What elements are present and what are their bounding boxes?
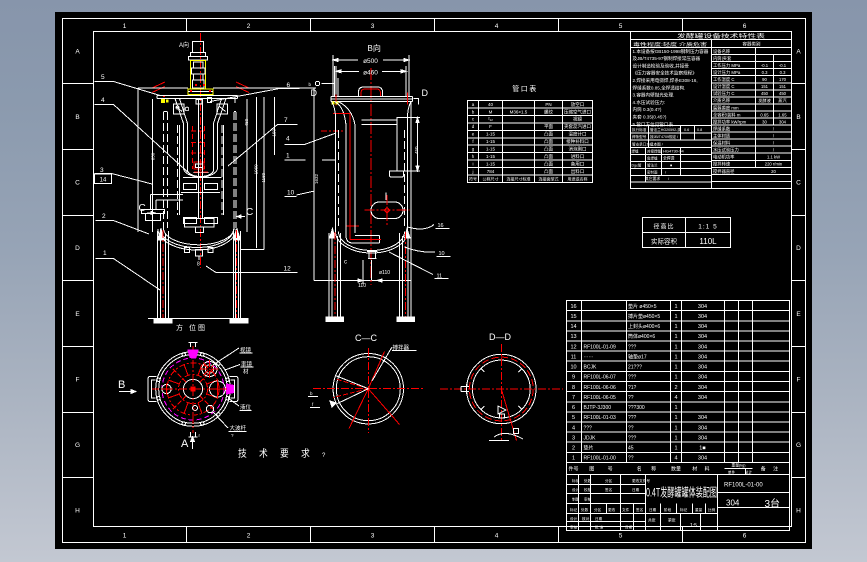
svg-text:45: 45	[628, 446, 634, 452]
svg-text:3: 3	[100, 167, 104, 174]
svg-text:数量: 数量	[671, 466, 681, 473]
svg-text:6: 6	[743, 23, 747, 30]
svg-text:C: C	[796, 180, 801, 187]
svg-text:核对: 核对	[582, 516, 590, 521]
svg-text:1: 1	[123, 23, 127, 30]
svg-text:??: ??	[628, 456, 634, 462]
svg-text:B: B	[118, 379, 125, 391]
svg-text:1060: 1060	[253, 164, 258, 175]
svg-text:7: 7	[572, 395, 575, 401]
svg-text:5: 5	[619, 533, 623, 540]
svg-text:处数: 处数	[584, 478, 592, 483]
svg-text:220 r/min: 220 r/min	[765, 162, 783, 167]
svg-text:450: 450	[761, 91, 769, 96]
svg-text:1■: 1■	[699, 446, 705, 452]
svg-text:ø460: ø460	[363, 69, 378, 76]
svg-text:设计制造检验及验收,并接受: 设计制造检验及验收,并接受	[633, 62, 690, 69]
svg-text:2: 2	[674, 385, 677, 391]
svg-text:21???: 21???	[628, 365, 642, 371]
svg-text:M36×1.5: M36×1.5	[510, 109, 528, 114]
svg-text:j: j	[472, 169, 474, 174]
svg-text:304: 304	[698, 304, 707, 310]
svg-text:1-15: 1-15	[486, 139, 496, 144]
svg-text:1632: 1632	[314, 173, 319, 184]
svg-text:《压力容器安全技术监察规程》: 《压力容器安全技术监察规程》	[633, 70, 697, 77]
svg-text:M: M	[489, 109, 493, 114]
svg-text:角焊缝: 角焊缝	[647, 156, 658, 161]
svg-text:1: 1	[674, 314, 677, 320]
svg-text:D—D: D—D	[489, 332, 511, 342]
svg-text:液位: 液位	[240, 403, 252, 411]
svg-text:0.3: 0.3	[762, 70, 768, 75]
svg-text:全容积/装料 m: 全容积/装料 m	[713, 111, 741, 118]
svg-text:标记: 标记	[680, 507, 688, 512]
svg-text:分区: 分区	[594, 507, 602, 512]
svg-text:温度计口: 温度计口	[569, 131, 587, 138]
svg-text:搅拌器直径: 搅拌器直径	[713, 168, 735, 175]
svg-text:备用口: 备用口	[571, 160, 585, 167]
svg-text:管口表: 管口表	[512, 84, 538, 93]
svg-text:阶段: 阶段	[664, 507, 672, 512]
svg-text:110: 110	[358, 283, 366, 289]
svg-text:1: 1	[674, 365, 677, 371]
svg-text:工作温度 C: 工作温度 C	[713, 76, 734, 83]
svg-text:消泡剩口: 消泡剩口	[569, 146, 587, 153]
svg-text:内筒 0.3(0.4?): 内筒 0.3(0.4?)	[633, 106, 662, 113]
svg-text:螺纹: 螺纹	[544, 108, 553, 115]
svg-text:A: A	[75, 49, 80, 56]
svg-text:6: 6	[743, 533, 747, 540]
svg-text:更改文件号: 更改文件号	[632, 478, 650, 483]
svg-text:第张: 第张	[668, 518, 676, 523]
svg-text:3台: 3台	[765, 497, 781, 510]
svg-text:10: 10	[570, 365, 576, 371]
svg-text:G: G	[796, 442, 801, 449]
svg-text:径高比: 径高比	[653, 223, 674, 231]
svg-text:日期: 日期	[632, 487, 640, 492]
svg-text:连接面型式: 连接面型式	[539, 175, 559, 181]
svg-text:管法兰: 管法兰	[647, 163, 658, 168]
svg-text:1: 1	[674, 304, 677, 310]
svg-text:夹套 0.35(0.45?): 夹套 0.35(0.45?)	[633, 114, 667, 121]
svg-text:材: 材	[243, 368, 249, 376]
svg-text:1: 1	[674, 425, 677, 431]
svg-text:发酵罐设备技术特性表: 发酵罐设备技术特性表	[677, 32, 766, 40]
svg-text:RF100L-01-09: RF100L-01-09	[584, 344, 616, 350]
svg-text:······: ······	[584, 354, 594, 360]
svg-text:304: 304	[698, 395, 707, 401]
svg-text:接种补料口: 接种补料口	[566, 138, 589, 145]
svg-text:30: 30	[762, 119, 767, 124]
svg-text:校核: 校核	[584, 487, 592, 492]
svg-text:1: 1	[674, 354, 677, 360]
svg-text:11: 11	[571, 354, 577, 360]
svg-text:HG4730-94: HG4730-94	[663, 149, 684, 154]
svg-text:12: 12	[284, 266, 292, 273]
svg-text:日期: 日期	[649, 507, 657, 512]
svg-text:实际容积: 实际容积	[651, 237, 678, 246]
svg-text:容器类别: 容器类别	[743, 41, 761, 48]
svg-text:5.管口方位见管口表.: 5.管口方位见管口表.	[633, 121, 675, 128]
svg-text:垫片 ø450×5: 垫片 ø450×5	[628, 303, 657, 310]
svg-text:密封面: 密封面	[647, 170, 658, 175]
svg-text:保温材料: 保温材料	[713, 140, 731, 147]
svg-text:批 准: 批 准	[595, 525, 604, 530]
svg-text:1: 1	[674, 324, 677, 330]
svg-text:304: 304	[779, 119, 787, 124]
svg-text:H: H	[75, 508, 80, 515]
svg-text:管法兰HG20592-类: 管法兰HG20592-类	[650, 127, 681, 132]
svg-text:4: 4	[101, 97, 105, 104]
svg-text:3: 3	[371, 23, 375, 30]
svg-text:签名: 签名	[636, 507, 644, 512]
svg-text:8: 8	[572, 385, 575, 391]
svg-text:文件: 文件	[622, 507, 630, 512]
svg-text:D: D	[75, 245, 80, 252]
svg-text:发酵液: 发酵液	[758, 97, 771, 104]
svg-text:304: 304	[698, 456, 707, 462]
svg-text:4: 4	[495, 23, 499, 30]
svg-text:450: 450	[244, 118, 249, 126]
svg-text:视镜: 视镜	[573, 116, 582, 123]
svg-text:304: 304	[698, 385, 707, 391]
svg-text:110L: 110L	[699, 237, 717, 246]
svg-text:2: 2	[572, 446, 575, 452]
svg-text:备 注: 备 注	[761, 466, 781, 473]
svg-text:ø110: ø110	[379, 270, 390, 276]
svg-text:F: F	[797, 377, 801, 384]
svg-text:A: A	[181, 438, 189, 450]
svg-text:3.容器内壁抛光处理.: 3.容器内壁抛光处理.	[633, 92, 675, 99]
svg-text:RF100L-01-03: RF100L-01-03	[584, 415, 616, 421]
svg-text:B向: B向	[368, 43, 381, 53]
svg-text:5: 5	[619, 23, 623, 30]
svg-text:电动机功率: 电动机功率	[713, 154, 735, 161]
svg-text:²₁₂: ²₁₂	[488, 117, 493, 122]
svg-text:介质名称: 介质名称	[713, 97, 731, 104]
svg-text:标化: 标化	[572, 478, 580, 483]
svg-text:试验压力 C: 试验压力 C	[713, 90, 734, 97]
svg-text:150: 150	[272, 128, 277, 136]
svg-text:1: 1	[674, 446, 677, 452]
svg-text:8: 8	[197, 262, 200, 268]
svg-text:304: 304	[698, 425, 707, 431]
svg-text:大波杆: 大波杆	[230, 424, 247, 432]
svg-text:连接尺寸标准: 连接尺寸标准	[507, 175, 531, 181]
svg-text:4: 4	[495, 533, 499, 540]
svg-text:■: ■	[670, 164, 672, 168]
svg-text:-0.1: -0.1	[761, 63, 769, 68]
svg-text:c: c	[344, 260, 347, 266]
svg-text:1.本设备按GB150-1998钢制压力容器: 1.本设备按GB150-1998钢制压力容器	[633, 48, 709, 55]
svg-text:RF100L-06-06: RF100L-06-06	[584, 385, 616, 391]
svg-text:15: 15	[570, 314, 576, 320]
svg-text:垫片: 垫片	[584, 445, 594, 452]
svg-text:F: F	[76, 377, 80, 384]
svg-text:执行标准: 执行标准	[632, 127, 647, 132]
svg-text:630: 630	[150, 152, 155, 160]
svg-text:D: D	[311, 88, 318, 98]
svg-text:共张: 共张	[648, 518, 656, 523]
svg-text:3: 3	[371, 533, 375, 540]
svg-text:1: 1	[674, 375, 677, 381]
svg-text:4: 4	[674, 395, 677, 401]
svg-text:14: 14	[100, 178, 107, 184]
svg-text:D: D	[796, 245, 801, 252]
svg-text:其它要求: 其它要求	[645, 176, 660, 181]
svg-text:2: 2	[247, 533, 251, 540]
svg-text:151: 151	[761, 84, 769, 89]
svg-text:按JB/T4709规定 /: 按JB/T4709规定 /	[650, 134, 678, 139]
svg-text:1: 1	[123, 533, 127, 540]
svg-text:主体材质: 主体材质	[713, 133, 731, 140]
svg-text:G: G	[75, 442, 80, 449]
svg-text:2.焊接采用电彁焊,焊条E308-16,: 2.焊接采用电彁焊,焊条E308-16,	[633, 77, 698, 84]
svg-text:设计: 设计	[572, 487, 580, 492]
svg-text:焊缝系数0.85,全焊透结构.: 焊缝系数0.85,全焊透结构.	[633, 84, 686, 91]
svg-text:???: ???	[584, 425, 593, 431]
svg-text:设计: 设计	[570, 516, 578, 521]
svg-text:见本图 /: 见本图 /	[650, 142, 663, 147]
svg-text:设备名称: 设备名称	[713, 48, 731, 55]
svg-text:毒性程度:轻度 介质危害: 毒性程度:轻度 介质危害	[633, 41, 708, 48]
svg-text:搅拌功率 kW/rpm: 搅拌功率 kW/rpm	[713, 118, 747, 125]
svg-text:1: 1	[674, 435, 677, 441]
svg-text:1-15: 1-15	[486, 132, 496, 137]
svg-text:日期: 日期	[595, 516, 603, 521]
svg-text:工作压力 MPa: 工作压力 MPa	[713, 62, 741, 69]
svg-text:20: 20	[771, 169, 776, 174]
svg-text:公称尺寸: 公称尺寸	[483, 175, 499, 181]
svg-text:4: 4	[286, 136, 290, 143]
svg-text:处数: 处数	[581, 507, 589, 512]
svg-text:B: B	[75, 114, 79, 121]
svg-text:0.65: 0.65	[760, 112, 769, 117]
svg-text:重量: 重量	[695, 507, 703, 512]
svg-text:BJTP-3J300: BJTP-3J300	[584, 405, 612, 411]
svg-text:单件: 单件	[728, 469, 736, 474]
svg-text:???300: ???300	[628, 405, 645, 411]
svg-text:分区: 分区	[605, 478, 613, 483]
svg-text:H: H	[796, 508, 801, 515]
svg-text:标记: 标记	[570, 507, 578, 512]
svg-text:全焊透: 全焊透	[663, 156, 675, 161]
svg-text:RF100L-01-00: RF100L-01-00	[584, 456, 616, 462]
svg-text:304: 304	[698, 415, 707, 421]
svg-text:设计温度 C: 设计温度 C	[713, 83, 734, 90]
svg-text:2: 2	[102, 213, 106, 220]
svg-text:1:1 5: 1:1 5	[698, 224, 717, 231]
svg-text:170: 170	[779, 77, 787, 82]
svg-text:技术要求: 技术要求	[238, 447, 322, 460]
svg-text:2: 2	[247, 23, 251, 30]
svg-text:C: C	[75, 180, 80, 187]
svg-text:D: D	[422, 88, 429, 98]
svg-text:1.65: 1.65	[778, 112, 787, 117]
svg-text:进料口: 进料口	[571, 153, 585, 160]
svg-text:B: B	[796, 114, 800, 121]
svg-text:A: A	[796, 49, 801, 56]
svg-text:A向: A向	[179, 41, 189, 49]
svg-text:304: 304	[698, 435, 707, 441]
svg-text:1: 1	[674, 405, 677, 411]
svg-text:3: 3	[572, 435, 575, 441]
svg-text:1:5: 1:5	[690, 523, 697, 529]
svg-text:焊缝系数: 焊缝系数	[713, 125, 731, 132]
svg-text:蒸汽: 蒸汽	[778, 97, 787, 104]
svg-text:40: 40	[488, 102, 494, 107]
svg-text:???: ???	[628, 375, 637, 381]
svg-text:784: 784	[487, 169, 495, 174]
svg-text:0.6: 0.6	[684, 128, 689, 132]
svg-text:审核: 审核	[584, 497, 592, 502]
svg-text:1-15: 1-15	[486, 161, 496, 166]
svg-text:RF100L-01-00: RF100L-01-00	[724, 483, 763, 489]
svg-text:件号: 件号	[568, 466, 578, 473]
svg-text:出料口: 出料口	[571, 168, 585, 175]
svg-text:0.4T发酵罐罐体装配图: 0.4T发酵罐罐体装配图	[646, 485, 717, 500]
svg-text:压缩空气进口: 压缩空气进口	[564, 108, 591, 115]
svg-text:0.3: 0.3	[780, 70, 786, 75]
svg-text:C: C	[139, 203, 146, 214]
svg-text:RF100L-06-05: RF100L-06-05	[584, 395, 616, 401]
svg-text:PN: PN	[545, 102, 551, 107]
svg-text:焊缝: 焊缝	[632, 149, 640, 154]
svg-text:1: 1	[286, 153, 290, 160]
svg-text:304: 304	[698, 354, 707, 360]
svg-text:304: 304	[698, 365, 707, 371]
svg-text:1: 1	[674, 415, 677, 421]
svg-text:日期: 日期	[625, 525, 633, 530]
svg-text:Dg≤管: Dg≤管	[632, 163, 642, 168]
svg-text:ø500: ø500	[363, 58, 378, 65]
svg-text:1.1 kW: 1.1 kW	[767, 155, 780, 160]
svg-text:304: 304	[698, 344, 707, 350]
svg-text:BCJK: BCJK	[584, 365, 597, 371]
svg-text:9: 9	[572, 375, 575, 381]
svg-text:1: 1	[674, 344, 677, 350]
svg-text:放空口: 放空口	[571, 101, 585, 108]
svg-text:???: ???	[628, 415, 637, 421]
svg-text:签名: 签名	[605, 487, 613, 492]
svg-text:??: ??	[628, 425, 634, 431]
svg-text:151: 151	[779, 84, 787, 89]
svg-text:材 料: 材 料	[692, 466, 712, 473]
svg-text:焊条型号: 焊条型号	[632, 134, 647, 139]
svg-text:i: i	[473, 161, 474, 166]
svg-text:450: 450	[414, 146, 419, 154]
svg-text:符号: 符号	[469, 175, 477, 181]
svg-text:304: 304	[726, 499, 740, 508]
svg-text:E: E	[796, 311, 801, 318]
svg-text:6: 6	[287, 82, 291, 89]
svg-text:上封头ø400×6: 上封头ø400×6	[628, 323, 660, 330]
svg-text:1: 1	[674, 334, 677, 340]
svg-text:及JB/T4735-97钢制焊接常压容器: 及JB/T4735-97钢制焊接常压容器	[633, 55, 701, 62]
svg-text:0.8: 0.8	[697, 128, 702, 132]
svg-text:304: 304	[698, 314, 707, 320]
svg-text:1-15: 1-15	[486, 147, 496, 152]
svg-text:-0.1: -0.1	[779, 63, 787, 68]
svg-text:F: F	[489, 124, 492, 129]
svg-text:名 称: 名 称	[637, 466, 660, 473]
svg-text:304: 304	[698, 334, 707, 340]
svg-text:7: 7	[284, 117, 288, 124]
svg-text:4: 4	[674, 456, 677, 462]
svg-text:13: 13	[570, 334, 576, 340]
svg-text:304: 304	[698, 324, 707, 330]
svg-text:腐蕤裘度 mm: 腐蕤裘度 mm	[713, 104, 739, 111]
svg-text:??: ??	[628, 395, 634, 401]
svg-text:内筒|夹套: 内筒|夹套	[713, 55, 732, 62]
svg-text:水压试验压力: 水压试验压力	[713, 147, 739, 154]
svg-text:更改: 更改	[608, 507, 616, 512]
svg-text:搅拌转速: 搅拌转速	[713, 161, 731, 168]
svg-text:14: 14	[570, 324, 576, 330]
svg-text:E: E	[75, 311, 80, 318]
svg-text:???: ???	[628, 344, 637, 350]
svg-text:JDJK: JDJK	[584, 435, 597, 441]
svg-text:夹套蕊汽进口: 夹套蕊汽进口	[564, 123, 591, 130]
svg-text:筒体ø400×6: 筒体ø400×6	[628, 333, 655, 340]
svg-text:12: 12	[570, 344, 576, 350]
svg-text:对接焊缝: 对接焊缝	[647, 149, 661, 154]
svg-text:总计: 总计	[745, 469, 753, 474]
svg-text:???: ???	[628, 435, 637, 441]
svg-text:1: 1	[103, 250, 107, 257]
svg-text:搏片垫ø450×5: 搏片垫ø450×5	[628, 313, 660, 320]
svg-text:90: 90	[762, 77, 767, 82]
svg-text:4: 4	[572, 425, 575, 431]
svg-text:设计压力 MPa: 设计压力 MPa	[713, 69, 741, 76]
svg-text:1-15: 1-15	[486, 154, 496, 159]
svg-text:1: 1	[572, 456, 575, 462]
svg-text:方 位图: 方 位图	[176, 323, 207, 332]
svg-text:1160: 1160	[261, 172, 266, 182]
svg-text:图 号: 图 号	[589, 467, 618, 473]
svg-text:RF100L-06-07: RF100L-06-07	[584, 375, 616, 381]
svg-text:审核: 审核	[570, 525, 578, 530]
svg-text:304: 304	[698, 375, 707, 381]
svg-text:?1?: ?1?	[628, 385, 637, 391]
svg-text:16: 16	[570, 304, 576, 310]
svg-text:制图: 制图	[572, 497, 580, 502]
svg-text:用途或名称: 用途或名称	[568, 175, 588, 181]
svg-text:比例: 比例	[708, 507, 716, 512]
svg-text:6: 6	[572, 405, 575, 411]
svg-text:450: 450	[779, 91, 787, 96]
svg-text:轴垫ø17: 轴垫ø17	[628, 353, 647, 360]
svg-text:10: 10	[287, 190, 295, 197]
svg-text:5: 5	[572, 415, 575, 421]
svg-text:C—C: C—C	[355, 333, 377, 343]
svg-text:重量(kg): 重量(kg)	[731, 463, 746, 468]
svg-text:5: 5	[101, 74, 105, 81]
svg-text:4.水压试验压力:: 4.水压试验压力:	[633, 99, 666, 106]
